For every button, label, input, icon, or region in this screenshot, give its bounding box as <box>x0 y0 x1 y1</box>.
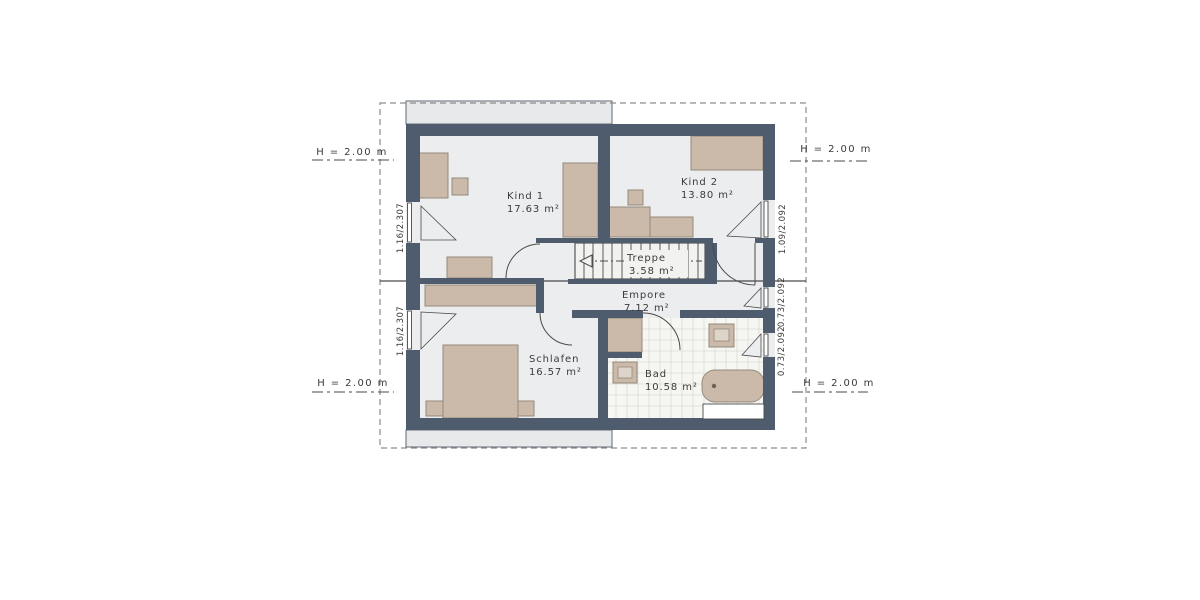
wall-exterior-left <box>406 243 420 310</box>
room-area-kind1: 17.63 m² <box>507 204 560 215</box>
wall-kind1-schlafen <box>406 278 544 284</box>
floor-plan-canvas: Kind 1 17.63 m² Kind 2 13.80 m² Treppe 3… <box>0 0 1200 600</box>
wall-stair-north-stub <box>755 238 763 243</box>
schlafen-bed <box>443 345 518 418</box>
room-name-bad: Bad <box>645 369 667 380</box>
floor-plan-drawing: Kind 1 17.63 m² Kind 2 13.80 m² Treppe 3… <box>0 0 1200 600</box>
room-name-empore: Empore <box>622 290 666 301</box>
wall-schlafen-bad <box>598 310 608 418</box>
bath-wall-niche <box>703 404 764 419</box>
wall-exterior-left <box>406 124 420 202</box>
wall-schlafen-empore <box>536 284 544 313</box>
wall-stair-south <box>568 279 717 284</box>
wall-stair-north <box>536 238 713 243</box>
toilet-bowl <box>618 367 632 378</box>
bathtub <box>702 370 764 402</box>
kind1-bed <box>418 153 448 198</box>
dimension-label-left-bottom: 1.16/2.307 <box>396 306 406 356</box>
room-name-kind2: Kind 2 <box>681 177 718 188</box>
window-empore <box>764 288 768 307</box>
shower <box>606 318 642 352</box>
bathtub-drain-icon <box>712 384 716 388</box>
height-marker-bottom-right: H = 2.00 m <box>803 378 874 389</box>
wall-exterior-bottom <box>406 418 775 430</box>
room-name-treppe: Treppe <box>626 253 666 264</box>
wall-exterior-right <box>763 357 775 430</box>
schlafen-wardrobe <box>425 285 537 306</box>
room-area-treppe: 3.58 m² <box>629 266 675 277</box>
height-marker-top-right: H = 2.00 m <box>800 144 871 155</box>
wall-exterior-left <box>406 350 420 430</box>
kind2-desk <box>607 207 650 237</box>
wall-kind1-kind2 <box>598 124 610 243</box>
kind1-dresser <box>447 257 492 278</box>
window-kind2 <box>764 201 768 237</box>
dimension-label-right-bottom: 0.73/2.092 <box>777 326 787 376</box>
wall-shower-stub <box>598 352 642 358</box>
washbasin-bowl <box>714 329 729 341</box>
nightstand-left <box>426 401 443 416</box>
dimension-label-left-top: 1.16/2.307 <box>396 203 406 253</box>
window-kind1 <box>408 203 412 242</box>
wall-exterior-right <box>763 238 775 287</box>
room-area-kind2: 13.80 m² <box>681 190 734 201</box>
room-name-schlafen: Schlafen <box>529 354 579 365</box>
room-area-empore: 7.12 m² <box>624 303 670 314</box>
kind2-desk-2 <box>650 217 693 237</box>
roof-strip-bottom <box>406 430 612 447</box>
dimension-label-right-middle: 0.73/2.092 <box>777 277 787 327</box>
window-bad <box>764 334 768 356</box>
height-marker-bottom-left: H = 2.00 m <box>317 378 388 389</box>
wall-stair-east <box>705 243 717 279</box>
wall-exterior-right <box>763 124 775 200</box>
wall-exterior-top <box>406 124 775 136</box>
kind1-wardrobe <box>563 163 598 237</box>
window-schlafen <box>408 311 412 349</box>
room-name-kind1: Kind 1 <box>507 191 544 202</box>
room-area-schlafen: 16.57 m² <box>529 367 582 378</box>
nightstand-right <box>518 401 534 416</box>
room-area-bad: 10.58 m² <box>645 382 698 393</box>
height-marker-top-left: H = 2.00 m <box>316 147 387 158</box>
dimension-label-right-top: 1.09/2.092 <box>778 204 788 254</box>
kind2-side-table <box>628 190 643 205</box>
wall-bad-north <box>680 310 763 318</box>
kind1-side-table <box>452 178 468 195</box>
roof-strip-top <box>406 101 612 124</box>
kind2-bed <box>691 136 763 170</box>
wall-exterior-right <box>763 308 775 333</box>
